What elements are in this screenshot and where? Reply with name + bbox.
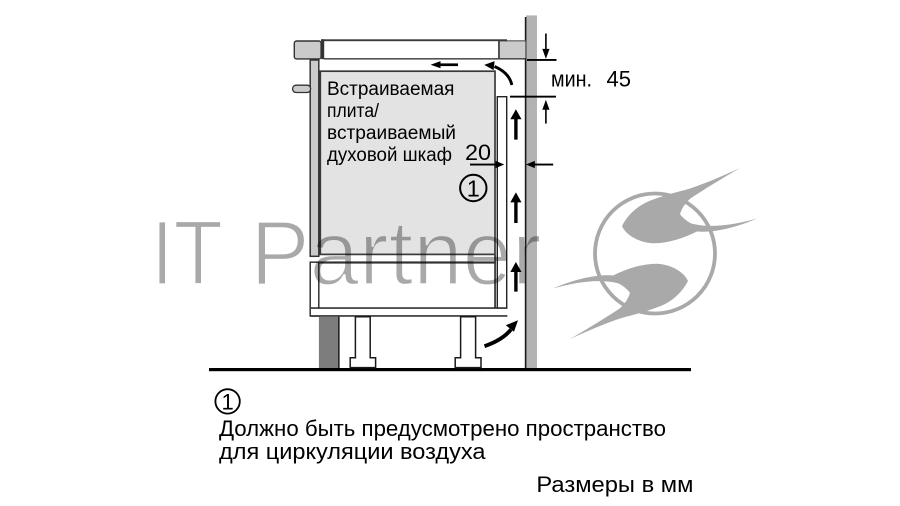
svg-text:мин.: мин.	[551, 67, 592, 92]
svg-text:духовой шкаф: духовой шкаф	[327, 145, 452, 166]
svg-text:IT: IT	[151, 202, 223, 304]
svg-text:45: 45	[607, 67, 632, 92]
svg-text:20: 20	[465, 140, 491, 165]
svg-text:1: 1	[221, 389, 233, 414]
svg-text:встраиваемый: встраиваемый	[327, 123, 456, 144]
svg-text:плита/: плита/	[327, 101, 380, 122]
svg-text:1: 1	[467, 176, 480, 202]
svg-text:для циркуляции воздуха: для циркуляции воздуха	[219, 439, 486, 464]
svg-text:Должно быть предусмотрено прос: Должно быть предусмотрено пространство	[219, 416, 666, 441]
svg-text:Встраиваемая: Встраиваемая	[327, 79, 454, 100]
svg-text:Partner: Partner	[251, 202, 542, 304]
svg-text:Размеры в мм: Размеры в мм	[536, 472, 693, 497]
